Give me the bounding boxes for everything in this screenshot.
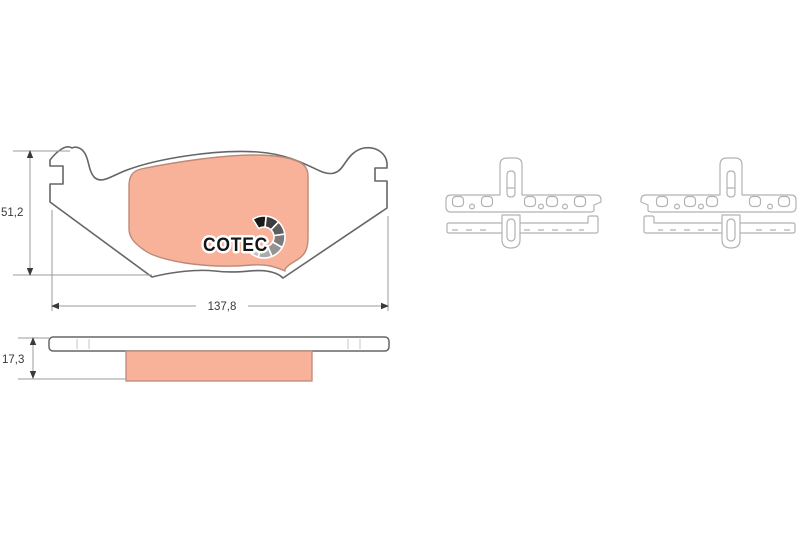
brake-pad-front-view: COTEC (50, 147, 387, 278)
dim-width-label: 137,8 (208, 301, 237, 313)
brake-pad-side-view (49, 337, 389, 381)
side-friction-material (126, 351, 312, 381)
dim-arrow-down (30, 371, 36, 379)
dim-thickness-label: 17,3 (2, 354, 24, 366)
side-backing-plate (49, 337, 389, 351)
shim-right (641, 158, 796, 248)
cotec-logo-text: COTEC (203, 235, 268, 256)
dim-height-label: 51,2 (1, 207, 23, 219)
technical-drawing-svg: COTEC 51,2 137,8 (0, 0, 800, 533)
shim-left (446, 158, 601, 248)
brake-pad-drawing-canvas: COTEC 51,2 137,8 (0, 0, 800, 533)
